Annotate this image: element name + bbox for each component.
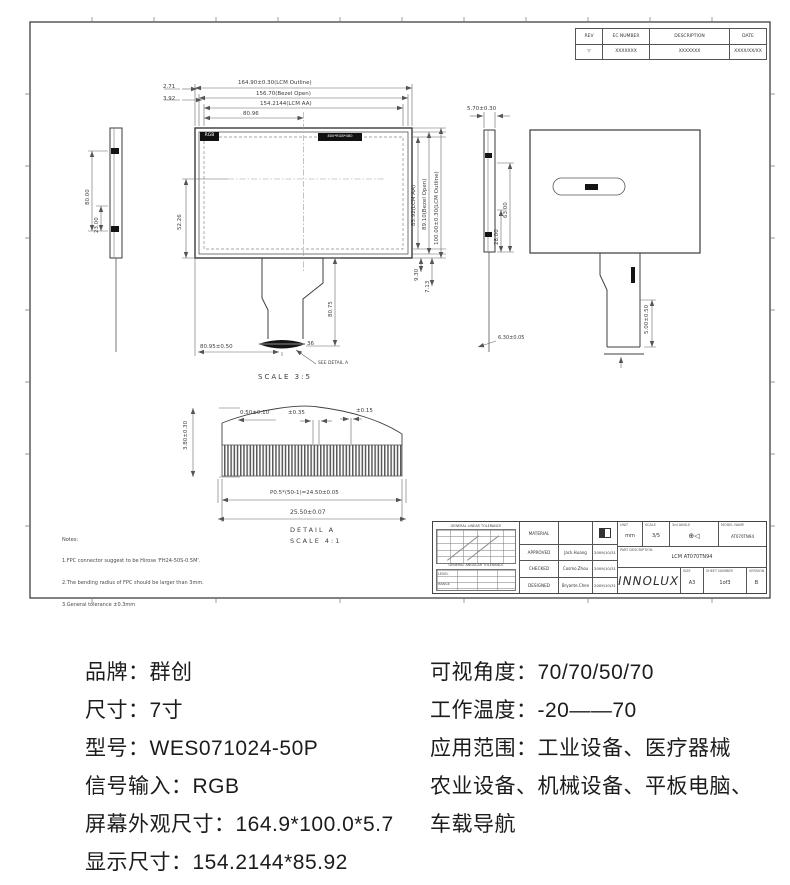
- spec-application-2: 农业设备、机械设备、平板电脑、: [430, 776, 753, 797]
- size-label: SIZE: [683, 569, 691, 573]
- rev-symbol: ▽: [576, 45, 603, 60]
- dim-pitch: P0.5*(50-1)=24.50±0.05: [270, 491, 339, 497]
- dim-23-00: 23.00: [95, 217, 101, 233]
- dim-thickness: 5.70±0.30: [467, 107, 496, 113]
- rgb-label: RGB: [205, 134, 215, 139]
- dim-80-75: 80.75: [329, 301, 335, 317]
- material-symbol-cell: [593, 522, 617, 544]
- sheet-frame: [25, 17, 775, 603]
- spec-temperature: 工作温度：-20——70: [430, 700, 637, 721]
- dim-6-30: 6.30±0.05: [498, 336, 524, 341]
- title-block-right: UNIT mm SCALE 3/5 3rd ANGLE ⊕◁ MODEL NAM…: [618, 522, 766, 593]
- version-label: VERSION: [749, 569, 764, 573]
- detail-a-scale: SCALE 4:1: [290, 538, 341, 545]
- engineering-drawing: REV EC NUMBER DESCRIPTION DATE ▽ XXXXXXX…: [0, 0, 790, 630]
- dim-total: 25.50±0.07: [290, 510, 326, 516]
- approved-name: Jack.Huang: [559, 545, 593, 560]
- designed-row: DESIGNED Bryante.Chen 2009/10/31: [520, 578, 617, 593]
- approval-block: MATERIAL APPROVED Jack.Huang 2009/10/31 …: [520, 522, 618, 593]
- level-label: LEVEL: [438, 572, 448, 576]
- date-value: XXXX/XX/XX: [730, 45, 766, 60]
- sheet-value: 1of3: [719, 580, 730, 586]
- left-side-view: [88, 128, 122, 352]
- spec-signal: 信号输入：RGB: [85, 776, 240, 797]
- detail-a-title: DETAIL A: [290, 527, 335, 534]
- dim-80-00: 80.00: [86, 189, 92, 205]
- spec-brand: 品牌：群创: [85, 662, 193, 683]
- spec-size: 尺寸：7寸: [85, 700, 183, 721]
- dim-0-15: ±0.15: [356, 409, 373, 415]
- front-view: [195, 112, 412, 272]
- revision-header-row: REV EC NUMBER DESCRIPTION DATE: [576, 29, 766, 44]
- designed-name: Bryante.Chen: [559, 578, 593, 593]
- version-value: B: [755, 580, 758, 586]
- tolerance-header: GENERAL LINEAR TOLERANCE: [433, 524, 519, 528]
- material-value: [559, 522, 593, 544]
- model-name-label: MODEL NAME: [721, 523, 744, 527]
- part-description-row: PART DESCRIPTION LCM AT070TN94: [618, 547, 766, 568]
- dim-outline-h: 164.90±0.30(LCM Outline): [238, 81, 312, 87]
- third-angle-label: 3rd ANGLE: [672, 523, 690, 527]
- ec-number-value: XXXXXXX: [603, 45, 650, 60]
- dim-52-26: 52.26: [178, 214, 184, 230]
- range-label: RANGE: [438, 582, 450, 586]
- description-header: DESCRIPTION: [650, 29, 730, 44]
- resolution-label: 800*RGB*480: [327, 135, 352, 139]
- tolerance-table: GENERAL LINEAR TOLERANCE GENERAL ANGULAR…: [433, 522, 520, 593]
- resolution-chip: 800*RGB*480: [318, 133, 362, 141]
- note-line: Notes:: [62, 537, 204, 544]
- description-value: XXXXXXX: [650, 45, 730, 60]
- logo-cell: INNOLUX: [618, 568, 681, 593]
- checked-label: CHECKED: [520, 561, 559, 576]
- checked-row: CHECKED Cosmo.Zhou 2009/10/31: [520, 561, 617, 577]
- model-name-value: AT070TN94: [731, 534, 754, 539]
- dim-2-71: 2.71: [163, 85, 175, 91]
- rgb-label-chip: RGB: [200, 132, 219, 141]
- version-cell: VERSION B: [747, 568, 766, 593]
- dim-outline-v: 100.00±0.30(LCM Outline): [435, 171, 441, 245]
- approved-date: 2009/10/31: [593, 545, 617, 560]
- dim-80-95: 80.95±0.50: [200, 345, 233, 351]
- detail-a-view: [193, 406, 406, 522]
- rev-header: REV: [576, 29, 603, 44]
- date-header: DATE: [730, 29, 766, 44]
- front-scale-label: SCALE 3:5: [258, 374, 312, 381]
- dim-28-00: 28.00: [495, 229, 501, 245]
- angular-header: GENERAL ANGULAR TOLERANCE: [433, 563, 519, 567]
- dim-0-35: ±0.35: [288, 411, 305, 417]
- size-value: A3: [689, 580, 696, 586]
- approved-label: APPROVED: [520, 545, 559, 560]
- spec-display: 显示尺寸：154.2144*85.92: [85, 852, 348, 873]
- model-name-cell: MODEL NAME AT070TN94: [719, 522, 766, 546]
- dim-7-13: 7.13: [426, 281, 432, 293]
- dim-bezel-h: 156.70(Bezel Open): [256, 92, 311, 98]
- dim-aa-v: 85.92(LCM AA): [412, 185, 418, 226]
- dim-63-00: 63.00: [504, 202, 510, 218]
- unit-label: UNIT: [620, 523, 628, 527]
- revision-row: ▽ XXXXXXX XXXXXXX XXXX/XX/XX: [576, 44, 766, 60]
- dim-3-80: 3.80±0.30: [184, 421, 190, 450]
- dim-80-96: 80.96: [243, 112, 259, 118]
- dim-aa-h: 154.2144(LCM AA): [260, 102, 312, 108]
- revision-table: REV EC NUMBER DESCRIPTION DATE ▽ XXXXXXX…: [575, 28, 767, 60]
- material-label: MATERIAL: [520, 522, 559, 544]
- approved-row: APPROVED Jack.Huang 2009/10/31: [520, 545, 617, 561]
- dim-3-92: 3.92: [163, 97, 175, 103]
- dim-0-50: 0.50±0.10: [240, 411, 269, 417]
- fpc-tail-front: [260, 258, 323, 348]
- sheet-label: SHEET NUMBER: [706, 569, 733, 573]
- drawing-notes: Notes: 1.FPC connector suggest to be Hir…: [62, 522, 204, 624]
- note-line: 2.The bending radius of FPC should be la…: [62, 580, 204, 587]
- spec-model: 型号：WES071024-50P: [85, 738, 318, 759]
- note-line: 3.General tolerance ±0.3mm: [62, 602, 204, 609]
- product-page: { "drawing": { "revision_table": { "head…: [0, 0, 790, 885]
- unit-cell: UNIT mm: [618, 522, 643, 546]
- part-description-label: PART DESCRIPTION: [620, 548, 652, 552]
- product-spec-section: 品牌：群创 尺寸：7寸 型号：WES071024-50P 信号输入：RGB 屏幕…: [0, 645, 790, 885]
- scale-label: SCALE: [645, 523, 656, 527]
- spec-application-3: 车载导航: [430, 814, 516, 835]
- scale-value: 3/5: [652, 533, 660, 539]
- dim-9-30: 9.30: [415, 269, 421, 281]
- ec-number-header: EC NUMBER: [603, 29, 650, 44]
- dim-bezel-v: 89.10(Bezel Open): [423, 179, 429, 230]
- right-side-view: [470, 112, 514, 352]
- title-top-row: UNIT mm SCALE 3/5 3rd ANGLE ⊕◁ MODEL NAM…: [618, 522, 766, 547]
- material-row: MATERIAL: [520, 522, 617, 545]
- third-angle-symbol-icon: ⊕◁: [688, 532, 699, 540]
- note-line: 1.FPC connector suggest to be Hirose 'FH…: [62, 558, 204, 565]
- spec-outline: 屏幕外观尺寸：164.9*100.0*5.7: [85, 814, 394, 835]
- size-cell: SIZE A3: [681, 568, 704, 593]
- designed-label: DESIGNED: [520, 578, 559, 593]
- projection-symbol-icon: [599, 528, 611, 538]
- title-block: GENERAL LINEAR TOLERANCE GENERAL ANGULAR…: [432, 521, 767, 594]
- dim-36: 36: [307, 342, 314, 348]
- dim-5-00: 5.00±0.50: [645, 305, 651, 334]
- see-detail-note: SEE DETAIL A: [318, 362, 348, 367]
- checked-name: Cosmo.Zhou: [559, 561, 593, 576]
- checked-date: 2009/10/31: [593, 561, 617, 576]
- title-bottom-row: INNOLUX SIZE A3 SHEET NUMBER 1of3 VERSIO…: [618, 568, 766, 593]
- third-angle-cell: 3rd ANGLE ⊕◁: [670, 522, 719, 546]
- spec-application: 应用范围：工业设备、医疗器械: [430, 738, 731, 759]
- scale-cell: SCALE 3/5: [643, 522, 670, 546]
- rear-view: [530, 130, 700, 368]
- front-dims-side: [182, 128, 446, 286]
- sheet-cell: SHEET NUMBER 1of3: [704, 568, 747, 593]
- designed-date: 2009/10/31: [593, 578, 617, 593]
- unit-value: mm: [625, 533, 635, 539]
- innolux-logo: INNOLUX: [617, 574, 680, 588]
- spec-view-angle: 可视角度：70/70/50/70: [430, 662, 654, 683]
